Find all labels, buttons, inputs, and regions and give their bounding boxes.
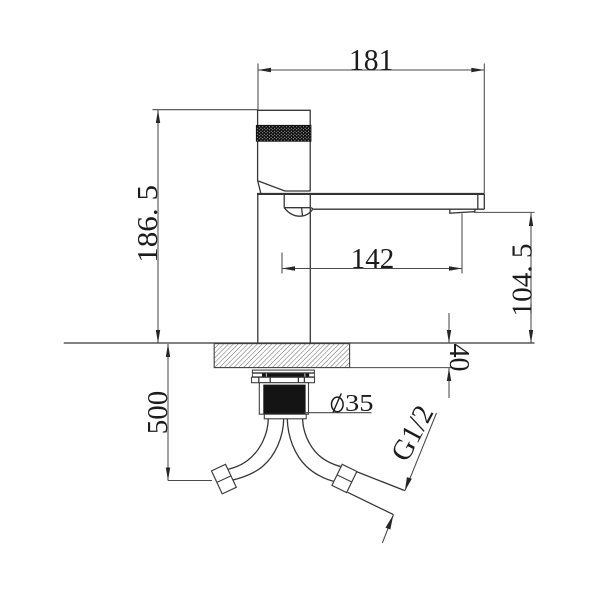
svg-text:186. 5: 186. 5	[132, 185, 164, 263]
svg-text:181: 181	[349, 43, 394, 77]
svg-text:35: 35	[345, 390, 374, 417]
svg-text:142: 142	[351, 243, 395, 275]
svg-text:500: 500	[142, 391, 174, 435]
svg-text:40: 40	[443, 344, 474, 372]
svg-text:104. 5: 104. 5	[506, 244, 538, 317]
